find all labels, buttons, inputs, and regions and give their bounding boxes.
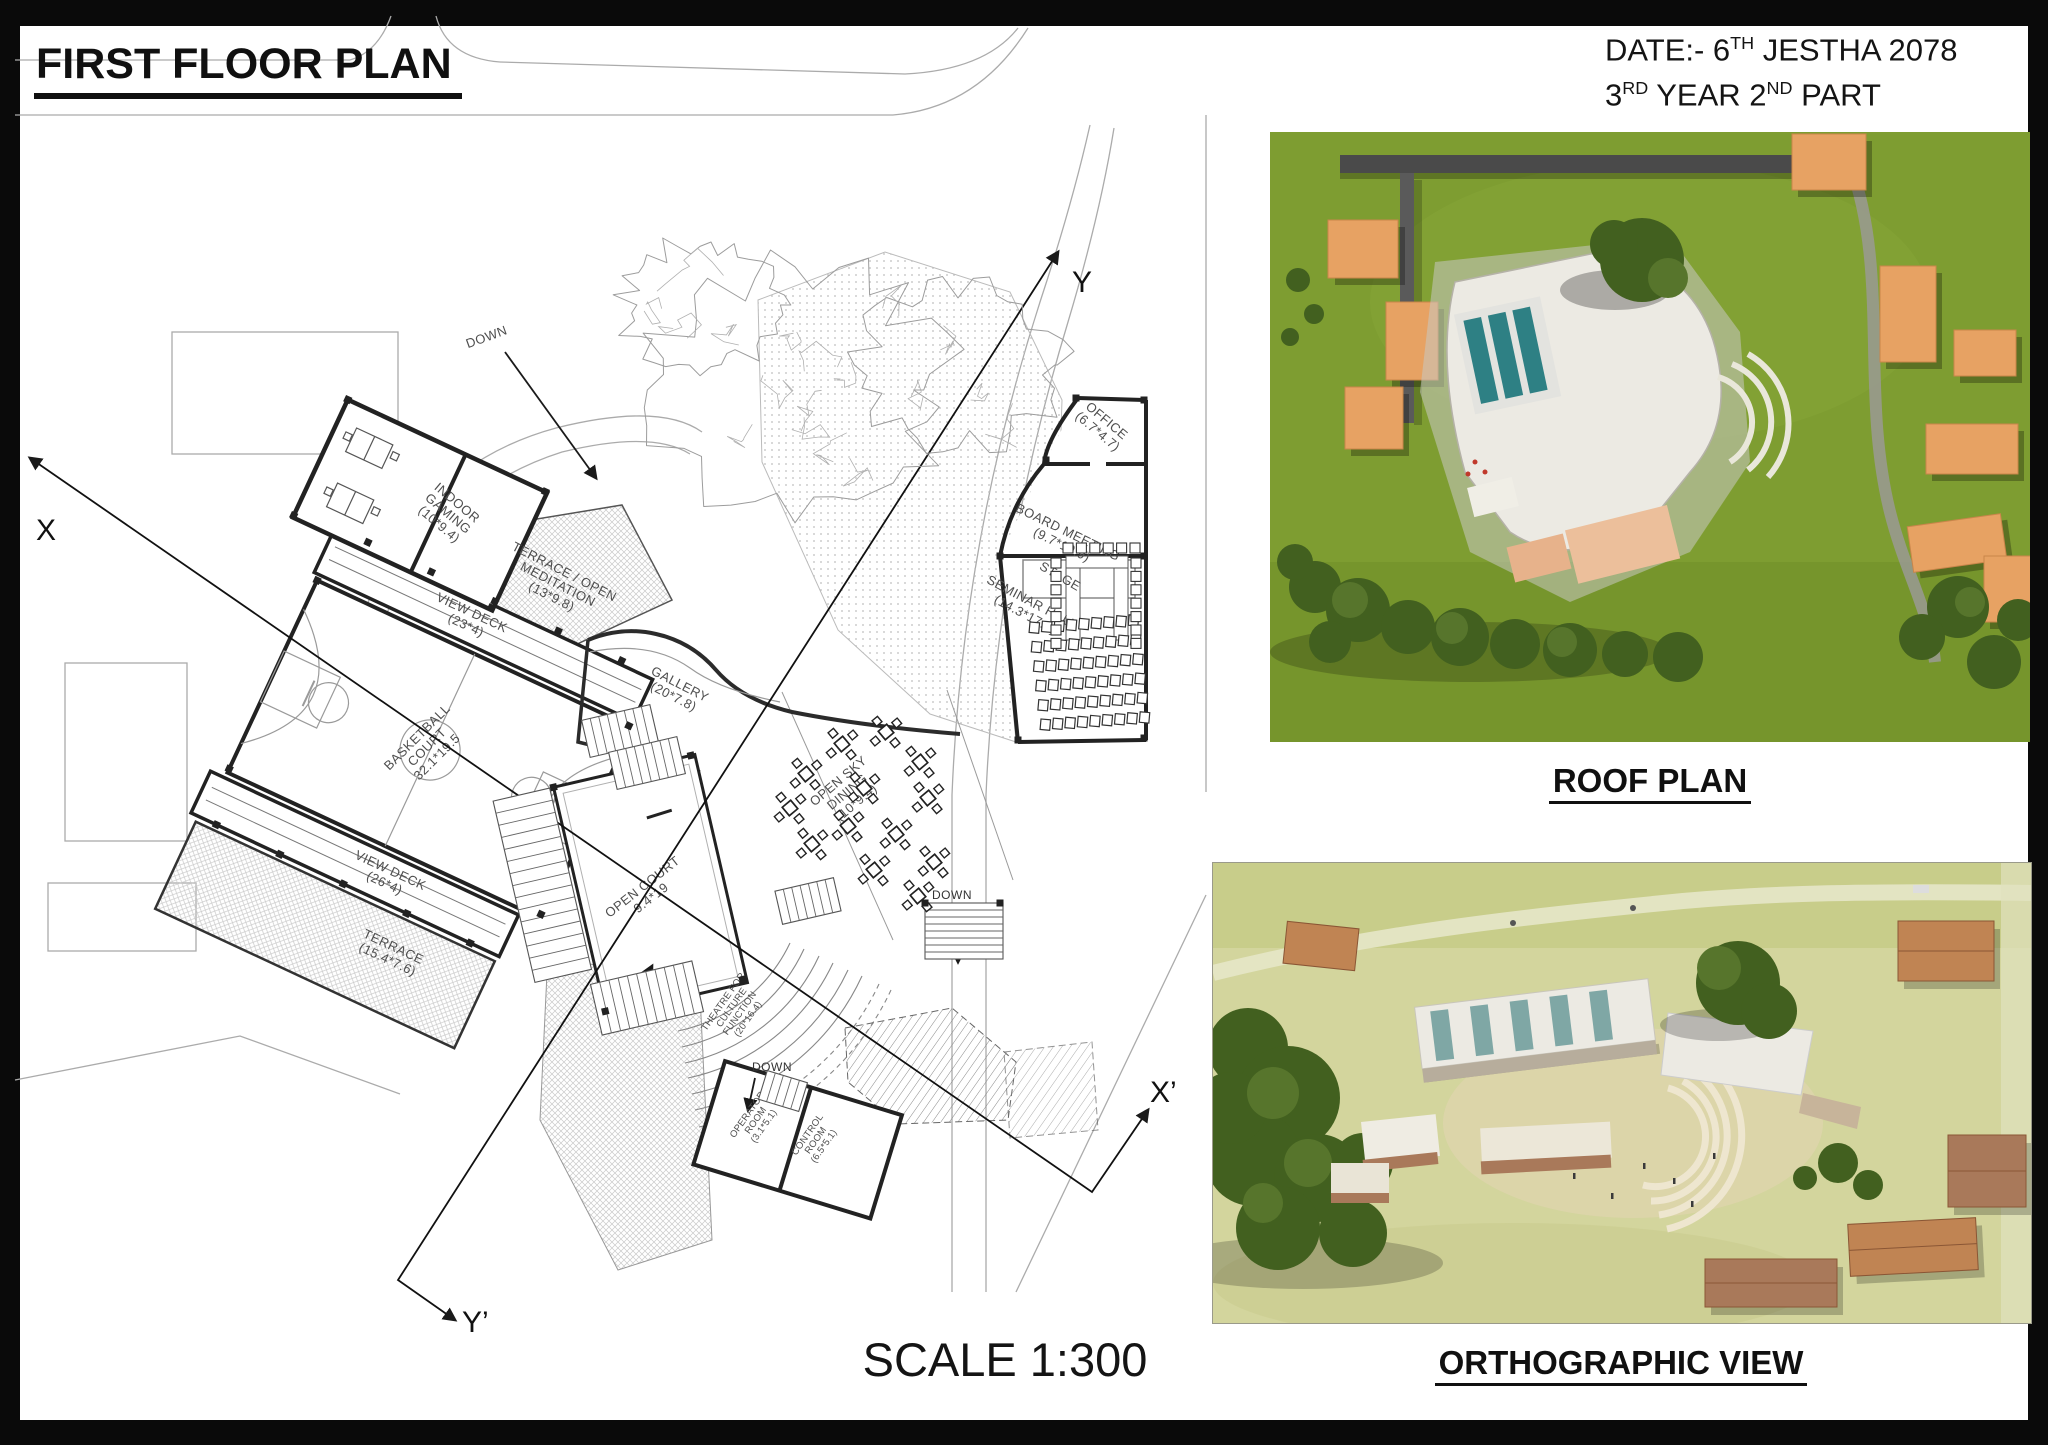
scale-label: SCALE 1:300	[745, 1332, 1265, 1387]
label-down-stairs: DOWN	[932, 888, 972, 902]
drawing-sheet-page: VIEW DECK (23*4) BASKETBALL COURT 32.1*1…	[0, 0, 2048, 1445]
date-line-1: DATE:- 6TH JESTHA 2078	[1605, 24, 1957, 69]
roof-plan-caption: ROOF PLAN	[1270, 762, 2030, 800]
section-marker-y-prime: Y’	[462, 1306, 489, 1339]
orthographic-view-caption: ORTHOGRAPHIC VIEW	[1212, 1344, 2030, 1382]
section-marker-x: X	[36, 514, 56, 547]
label-ramp-down: DOWN	[464, 322, 509, 351]
section-marker-x-prime: X’	[1150, 1076, 1177, 1109]
orthographic-view-render	[1212, 862, 2032, 1324]
page-title: FIRST FLOOR PLAN	[34, 40, 462, 99]
ramp-down-arrow	[505, 352, 596, 478]
date-block: DATE:- 6TH JESTHA 2078 3RD YEAR 2ND PART	[1605, 24, 1957, 115]
date-line-2: 3RD YEAR 2ND PART	[1605, 69, 1957, 114]
section-marker-y: Y	[1072, 266, 1092, 299]
roof-plan-render	[1270, 132, 2030, 742]
stepped-terrace-hatch-2	[1004, 1042, 1098, 1138]
